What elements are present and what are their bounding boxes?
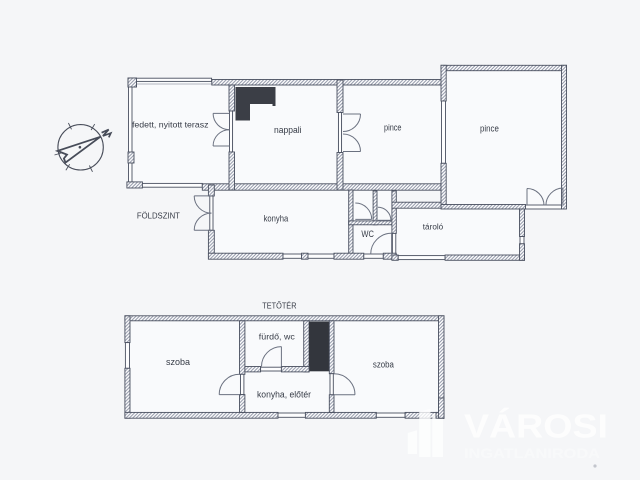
svg-text:pince: pince bbox=[480, 124, 499, 134]
svg-text:WC: WC bbox=[361, 229, 374, 240]
svg-text:tároló: tároló bbox=[423, 222, 444, 232]
svg-text:pince: pince bbox=[384, 123, 402, 133]
svg-text:INGATLANIRODA: INGATLANIRODA bbox=[464, 445, 600, 461]
svg-text:szoba: szoba bbox=[166, 357, 191, 368]
svg-text:VÁROSI: VÁROSI bbox=[464, 408, 608, 445]
svg-text:FÖLDSZINT: FÖLDSZINT bbox=[137, 211, 181, 221]
svg-text:fürdő, wc: fürdő, wc bbox=[259, 331, 296, 341]
svg-text:fedett, nyitott terasz: fedett, nyitott terasz bbox=[132, 119, 209, 129]
svg-text:konyha: konyha bbox=[264, 214, 289, 224]
svg-text:TETŐTÉR: TETŐTÉR bbox=[262, 301, 296, 311]
svg-text:szoba: szoba bbox=[373, 359, 394, 369]
svg-text:konyha, előtér: konyha, előtér bbox=[257, 389, 311, 399]
svg-text:nappali: nappali bbox=[274, 125, 302, 135]
